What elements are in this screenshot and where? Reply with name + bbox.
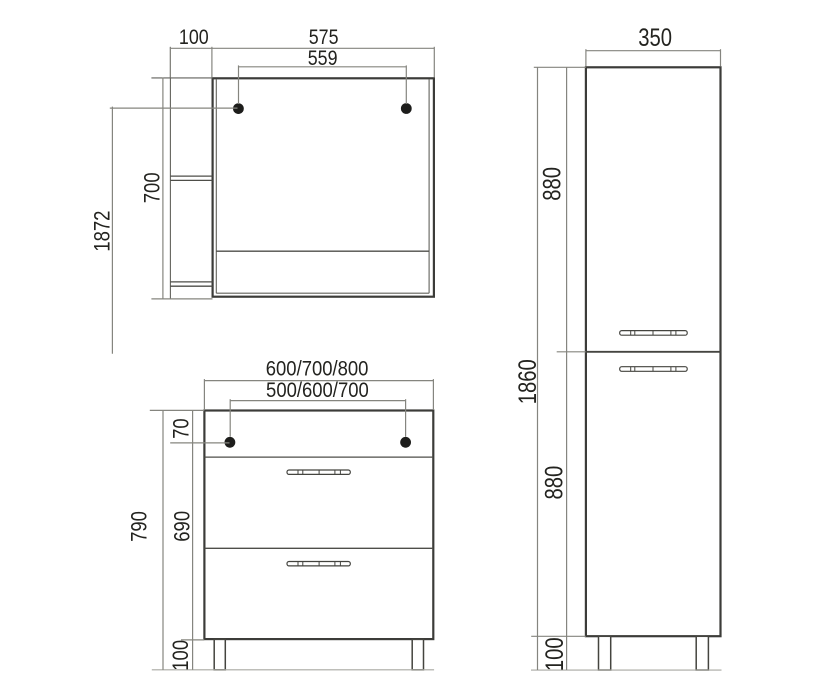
svg-text:500/600/700: 500/600/700 <box>266 379 369 402</box>
svg-text:1872: 1872 <box>91 211 115 252</box>
svg-text:700: 700 <box>141 172 165 203</box>
svg-text:100: 100 <box>170 640 194 671</box>
svg-text:600/700/800: 600/700/800 <box>266 357 369 380</box>
svg-text:880: 880 <box>540 466 569 500</box>
svg-text:70: 70 <box>170 418 194 439</box>
svg-text:690: 690 <box>171 511 195 542</box>
svg-text:100: 100 <box>179 26 209 50</box>
svg-text:350: 350 <box>638 23 672 52</box>
svg-text:790: 790 <box>128 511 152 542</box>
svg-text:100: 100 <box>540 637 569 671</box>
svg-text:880: 880 <box>537 167 566 201</box>
